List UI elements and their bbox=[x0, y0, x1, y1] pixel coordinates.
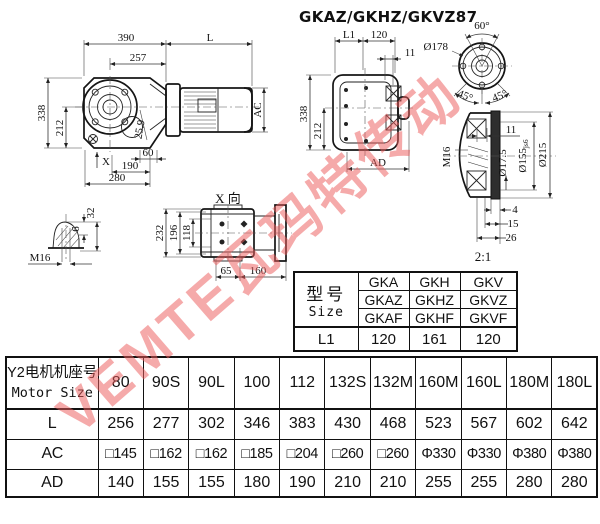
l1-label: L1 bbox=[294, 327, 358, 351]
cell: 642 bbox=[552, 409, 597, 439]
dim-17-5: Ø17.5 bbox=[497, 149, 509, 177]
label-x-arrow: X bbox=[102, 156, 110, 168]
dim-11-hub: 11 bbox=[506, 124, 517, 136]
dim-60: 60 bbox=[143, 147, 155, 159]
x-view-title: X 向 bbox=[215, 191, 241, 206]
cell: 180 bbox=[234, 469, 279, 497]
cell: 120 bbox=[358, 327, 409, 351]
cell: GKVF bbox=[460, 309, 517, 328]
row-AD: AD 140 155 155 180 190 210 210 255 255 2… bbox=[6, 469, 597, 497]
cell: 602 bbox=[507, 409, 552, 439]
dim-65: 65 bbox=[221, 265, 233, 277]
cell: 430 bbox=[325, 409, 370, 439]
dim-232: 232 bbox=[154, 225, 166, 242]
cell: 155 bbox=[189, 469, 234, 497]
motor-header-cn: Y2电机机座号 bbox=[7, 363, 98, 384]
cell: □162 bbox=[143, 439, 188, 469]
motor-header-en: Motor Size bbox=[7, 384, 98, 404]
row-L: L 256 277 302 346 383 430 468 523 567 60… bbox=[6, 409, 597, 439]
dim-45deg-right: 45° bbox=[490, 88, 509, 105]
cell: 180L bbox=[552, 357, 597, 409]
cell: □204 bbox=[280, 439, 325, 469]
cell: 90L bbox=[189, 357, 234, 409]
cell: GKH bbox=[409, 272, 460, 291]
cell: GKAF bbox=[358, 309, 409, 328]
cell: 256 bbox=[98, 409, 143, 439]
cell: □260 bbox=[325, 439, 370, 469]
model-size-table: 型号 Size GKA GKH GKV GKAZ GKHZ GKVZ GKAF … bbox=[293, 271, 518, 352]
cell: 160M bbox=[416, 357, 461, 409]
cell: 255 bbox=[461, 469, 506, 497]
dim-120: 120 bbox=[371, 29, 388, 41]
row-label: L bbox=[6, 409, 98, 439]
cell: 155 bbox=[143, 469, 188, 497]
cell: 567 bbox=[461, 409, 506, 439]
dim-118: 118 bbox=[181, 224, 193, 241]
cell: GKV bbox=[460, 272, 517, 291]
row-AC: AC □145 □162 □162 □185 □204 □260 □260 Φ3… bbox=[6, 439, 597, 469]
dim-178: Ø178 bbox=[424, 41, 449, 53]
cell: 132S bbox=[325, 357, 370, 409]
cell: □162 bbox=[189, 439, 234, 469]
cell: 280 bbox=[507, 469, 552, 497]
dim-257: 257 bbox=[130, 52, 147, 64]
cell: Φ380 bbox=[552, 439, 597, 469]
size-header-cn: 型号 bbox=[295, 280, 358, 305]
dim-L1: L1 bbox=[343, 29, 355, 41]
detail-scale-label: 2:1 bbox=[475, 249, 492, 264]
flange-view: 60° Ø178 45° 45° bbox=[424, 20, 512, 105]
cell: 90S bbox=[143, 357, 188, 409]
size-table-header: 型号 Size bbox=[294, 272, 358, 327]
dim-60deg: 60° bbox=[474, 20, 489, 32]
cell: 112 bbox=[280, 357, 325, 409]
dim-338-front: 338 bbox=[36, 104, 48, 121]
dim-190: 190 bbox=[122, 160, 139, 172]
cell: 255 bbox=[416, 469, 461, 497]
cell: □145 bbox=[98, 439, 143, 469]
dim-15: 15 bbox=[508, 218, 520, 230]
cell: Φ330 bbox=[461, 439, 506, 469]
cell: 190 bbox=[280, 469, 325, 497]
cell: 383 bbox=[280, 409, 325, 439]
row-label: AD bbox=[6, 469, 98, 497]
dim-6: 6 bbox=[70, 226, 82, 232]
dim-215: Ø215 bbox=[537, 142, 549, 167]
cell: 277 bbox=[143, 409, 188, 439]
cell: 120 bbox=[460, 327, 517, 351]
l1-row: L1 120 161 120 bbox=[294, 327, 517, 351]
dim-M16-key: M16 bbox=[30, 252, 51, 264]
dim-196: 196 bbox=[168, 224, 180, 241]
motor-header-row: Y2电机机座号 Motor Size 80 90S 90L 100 112 13… bbox=[6, 357, 597, 409]
dim-AC: AC bbox=[252, 102, 264, 117]
cell: 280 bbox=[552, 469, 597, 497]
dim-280: 280 bbox=[109, 172, 126, 184]
cell: GKAZ bbox=[358, 291, 409, 309]
cell: 160L bbox=[461, 357, 506, 409]
front-view: 390 L 257 338 212 AC 60 190 bbox=[36, 32, 268, 187]
dim-AD: AD bbox=[370, 157, 386, 169]
dim-M16-hub: M16 bbox=[441, 146, 453, 167]
cell: 161 bbox=[409, 327, 460, 351]
cell: 80 bbox=[98, 357, 143, 409]
cell: 180M bbox=[507, 357, 552, 409]
cell: 523 bbox=[416, 409, 461, 439]
size-header-en: Size bbox=[295, 305, 358, 320]
cell: □185 bbox=[234, 439, 279, 469]
size-row: 型号 Size GKA GKH GKV bbox=[294, 272, 517, 291]
side-view: L1 120 11 338 212 AD bbox=[298, 29, 416, 172]
dim-338-side: 338 bbox=[298, 105, 310, 122]
cell: 468 bbox=[370, 409, 415, 439]
cell: GKA bbox=[358, 272, 409, 291]
dim-26: 26 bbox=[506, 232, 518, 244]
hub-detail-view: M16 11 Ø17.5 Ø155js6 Ø215 4 bbox=[441, 111, 556, 264]
cell: 210 bbox=[325, 469, 370, 497]
dim-212-front: 212 bbox=[54, 120, 66, 137]
motor-size-table: Y2电机机座号 Motor Size 80 90S 90L 100 112 13… bbox=[5, 356, 598, 498]
dim-155js6: Ø155js6 bbox=[517, 139, 530, 172]
dim-390: 390 bbox=[118, 32, 135, 44]
cell: 100 bbox=[234, 357, 279, 409]
dim-11-side: 11 bbox=[405, 47, 416, 59]
cell: 210 bbox=[370, 469, 415, 497]
cell: 346 bbox=[234, 409, 279, 439]
dim-32: 32 bbox=[85, 208, 97, 219]
cell: GKVZ bbox=[460, 291, 517, 309]
cell: GKHF bbox=[409, 309, 460, 328]
x-direction-view: X 向 232 196 bbox=[154, 191, 292, 281]
dim-160: 160 bbox=[250, 265, 267, 277]
cell: □260 bbox=[370, 439, 415, 469]
dim-25-9: 25.9 bbox=[132, 118, 147, 140]
catalog-page: GKAZ/GKHZ/GKVZ87 bbox=[0, 0, 600, 524]
dim-L: L bbox=[207, 32, 214, 44]
cell: Φ330 bbox=[416, 439, 461, 469]
motor-table-header: Y2电机机座号 Motor Size bbox=[6, 357, 98, 409]
dim-4: 4 bbox=[512, 204, 518, 216]
cell: 140 bbox=[98, 469, 143, 497]
cell: GKHZ bbox=[409, 291, 460, 309]
dim-212-side: 212 bbox=[312, 123, 324, 140]
key-detail-view: M16 6 32 bbox=[28, 208, 101, 265]
row-label: AC bbox=[6, 439, 98, 469]
cell: 302 bbox=[189, 409, 234, 439]
cell: 132M bbox=[370, 357, 415, 409]
cell: Φ380 bbox=[507, 439, 552, 469]
